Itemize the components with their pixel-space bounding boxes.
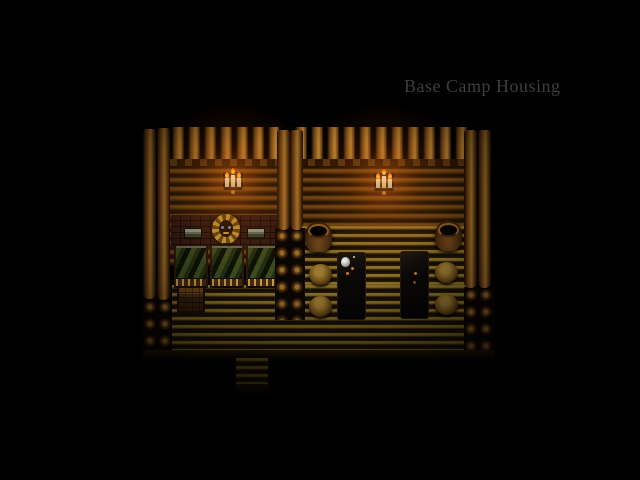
log-end-stack-right [464,287,495,350]
bed-blanket [248,246,278,278]
stool [309,296,332,317]
stool [435,294,458,315]
corridor-south-edge [236,384,268,397]
crumb-dot [351,267,354,270]
palisade-fence-left [172,127,279,160]
bed [210,246,244,288]
barrel-opening [308,224,329,238]
cabin-scene [143,115,495,397]
candle [376,179,380,188]
stool [309,264,332,285]
bed-footboard [212,278,242,288]
wall-log-right [478,130,491,288]
wall-log-divider [277,130,290,230]
shuttered-window-left [184,228,202,239]
barrel [305,222,332,252]
fence-sill-right [293,159,469,166]
bed-row [174,246,282,288]
wall-candelabra-icon [223,172,243,190]
flame-icon [231,168,235,174]
candelabra-pendant [231,190,235,194]
emblem-eye-right [228,226,231,229]
location-title: Base Camp Housing [404,76,604,98]
candelabra-pendant [382,191,386,195]
emblem-mouth [223,232,229,234]
fence-sill-left [170,159,280,166]
floor-south-edge [143,350,495,360]
wall-log-divider [290,130,303,230]
storage-chest [177,286,205,313]
bed-blanket [212,246,242,278]
barrel [435,221,462,251]
crumb-dot [414,272,417,275]
candle [237,178,241,187]
candle [382,176,386,188]
candle [225,178,229,187]
crumb-dot [346,272,349,275]
lion-emblem [212,214,240,250]
shuttered-window-right [247,228,265,239]
crumb-dot [413,281,416,284]
wall-log-left [157,128,170,300]
bed-footboard [248,278,278,288]
emblem-face [219,220,233,237]
wall-log-right [464,130,477,288]
flame-icon [382,169,386,175]
game-viewport[interactable]: Base Camp Housing [0,0,640,480]
sparkle-dot [353,256,355,258]
mug-icon [341,257,350,267]
exit-corridor-south [234,358,270,397]
chest-planks [179,288,203,311]
emblem-eye-left [221,226,224,229]
candle [388,179,392,188]
palisade-fence-right [295,127,468,160]
bed-blanket [176,246,206,278]
bed [174,246,208,288]
corridor-floor [236,358,268,384]
barrel-opening [438,223,459,237]
candle [231,175,235,187]
wall-log-left [143,129,156,299]
stool [435,262,458,283]
wall-candelabra-icon [374,173,394,191]
dining-table-right [400,251,429,319]
dining-table-left [337,252,366,320]
log-end-stack-divider [275,228,305,320]
